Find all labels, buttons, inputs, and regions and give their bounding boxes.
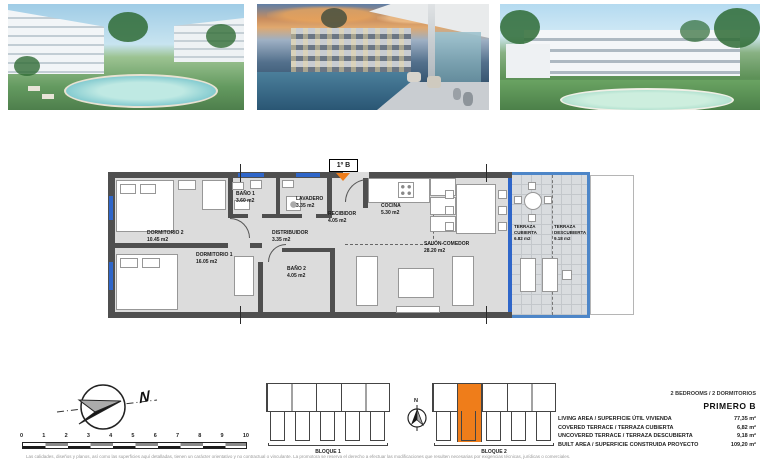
side-table <box>562 270 572 280</box>
chair <box>445 222 454 231</box>
swimming-pool <box>64 74 218 108</box>
terrace-rail <box>512 315 590 318</box>
wall-segment <box>108 243 228 248</box>
pillow <box>142 258 160 268</box>
dimension-tick <box>240 164 241 182</box>
terrace-chair <box>427 76 441 88</box>
desk <box>178 180 196 190</box>
terrace-chair <box>528 214 536 222</box>
area-table-row: BUILT AREA / SUPERFICIE CONSTRUIDA PROYE… <box>558 441 756 450</box>
window-glazing <box>109 262 113 290</box>
laundry-sink <box>282 180 294 188</box>
keyplan-bloque-2: BLOQUE 2 <box>432 383 556 457</box>
room-label-dormitorio-1: DORMITORIO 116.05 m2 <box>196 252 233 266</box>
wall-segment <box>282 248 330 252</box>
render-photo-building-lawn <box>500 4 760 110</box>
bedrooms-line: 2 BEDROOMS / 2 DORMITORIOS <box>558 391 756 397</box>
chair <box>498 222 507 231</box>
unit-name: PRIMERO B <box>558 401 756 411</box>
sun-lounger <box>520 258 536 292</box>
scale-bar <box>22 442 247 449</box>
block-outline <box>266 383 390 412</box>
room-label-dormitorio-2: DORMITORIO 210.45 m2 <box>147 230 184 244</box>
wall-segment <box>250 243 262 248</box>
block-bracket <box>268 443 388 446</box>
north-label: N <box>139 388 150 408</box>
scale-bar-numbers: 01 23 45 67 89 10 <box>20 433 249 439</box>
unit-terrace-outline <box>270 411 285 441</box>
wall-segment <box>262 214 302 218</box>
pillow <box>120 184 136 194</box>
unit-terrace-outline <box>486 411 501 441</box>
room-label-bano-2: BAÑO 24.05 m2 <box>287 266 306 280</box>
room-label-terraza-descubierta: TERRAZA DESCUBIERTA9.18 m2 <box>554 224 591 242</box>
dimension-tick <box>486 164 487 182</box>
sun-lounger <box>42 94 54 99</box>
room-label-cocina: COCINA5.30 m2 <box>381 203 401 217</box>
terrace-chair <box>407 72 421 82</box>
terrace-rail <box>587 172 590 318</box>
washbasin <box>232 182 244 190</box>
chair <box>498 206 507 215</box>
block-outline <box>432 383 556 412</box>
room-label-lavadero: LAVADERO3.35 m2 <box>296 196 323 210</box>
dining-table <box>456 184 496 234</box>
terrace-chair <box>528 182 536 190</box>
room-label-recibidor: RECIBIDOR4.05 m2 <box>328 211 356 225</box>
palm-tree <box>206 24 236 48</box>
chair <box>445 206 454 215</box>
wardrobe <box>202 180 226 210</box>
terrace-table <box>524 192 542 210</box>
palm-tree <box>108 12 148 42</box>
sofa <box>452 256 474 306</box>
entrance-arrow-icon <box>336 173 350 181</box>
sun-lounger <box>28 86 40 91</box>
wall-segment <box>108 312 512 318</box>
unit-terrace-outline <box>436 411 451 441</box>
wall-segment <box>276 178 280 214</box>
terrace-chair <box>544 196 552 204</box>
window-glazing <box>238 173 264 177</box>
unit-terrace-outline <box>370 411 385 441</box>
toilet <box>250 180 262 189</box>
terrace-glazing <box>508 178 512 312</box>
sofa <box>356 256 378 306</box>
coffee-table <box>398 268 434 298</box>
render-photo-pool-day <box>8 4 244 110</box>
window-glazing <box>296 173 320 177</box>
wardrobe <box>234 256 254 296</box>
unit-label-badge: 1º B <box>329 159 358 172</box>
chair <box>445 190 454 199</box>
room-label-terraza-cubierta: TERRAZA CUBIERTA6.82 m2 <box>514 224 551 242</box>
site-north-label: N <box>403 398 429 404</box>
area-table-row: UNCOVERED TERRACE / TERRAZA DESCUBIERTA9… <box>558 432 756 441</box>
sun-lounger <box>542 258 558 292</box>
wall-segment <box>327 178 332 214</box>
dimension-tick <box>240 306 241 324</box>
area-table-row: COVERED TERRACE / TERRAZA CUBIERTA6,82 m… <box>558 424 756 433</box>
site-compass-icon <box>406 405 428 431</box>
floor-plan: DORMITORIO 210.45 m2 DORMITORIO 116.05 m… <box>100 158 636 324</box>
unit-terrace-outline <box>320 411 335 441</box>
pillow <box>120 258 138 268</box>
area-summary: 2 BEDROOMS / 2 DORMITORIOS PRIMERO B LIV… <box>558 391 756 449</box>
palm-tree <box>500 10 540 44</box>
keyplan-bloque-1: BLOQUE 1 <box>266 383 390 457</box>
window-glazing <box>109 196 113 220</box>
legal-disclaimer: Las calidades, diseños y planos, así com… <box>26 454 752 459</box>
tv-bench <box>396 306 440 313</box>
decor-vase <box>453 88 461 100</box>
room-label-salon-comedor: SALÓN-COMEDOR28.20 m2 <box>424 241 469 255</box>
palm-tree <box>321 8 347 28</box>
chair <box>498 190 507 199</box>
terrace-rail <box>512 172 590 175</box>
render-photo-dusk-terrace <box>257 4 489 110</box>
cooktop <box>398 182 414 198</box>
room-label-distribuidor: DISTRIBUIDOR3.35 m2 <box>272 230 308 244</box>
wall-segment <box>330 248 335 318</box>
villa-facade <box>506 44 550 78</box>
terrace-divider-dashed <box>552 175 553 315</box>
pillow <box>140 184 156 194</box>
block-bracket <box>434 443 554 446</box>
unit-terrace-outline <box>461 411 476 441</box>
room-label-bano-1: BAÑO 13.60 m2 <box>236 191 255 205</box>
unit-terrace-outline <box>345 411 360 441</box>
kitchen-boundary-dashed <box>345 244 433 245</box>
unit-terrace-outline <box>536 411 551 441</box>
unit-terrace-outline <box>295 411 310 441</box>
lit-windows <box>291 28 411 74</box>
dimension-tick <box>486 306 487 324</box>
terrace-outline-extension <box>590 175 634 315</box>
decor-vase <box>463 92 473 106</box>
palm-tree <box>680 20 710 42</box>
wall-segment <box>258 262 263 318</box>
terrace-chair <box>514 196 522 204</box>
palm-tree <box>14 56 40 76</box>
palm-tree <box>714 8 760 48</box>
area-table-row: LIVING AREA / SUPERFICIE ÚTIL VIVIENDA77… <box>558 415 756 424</box>
swimming-pool <box>560 88 734 110</box>
unit-terrace-outline <box>511 411 526 441</box>
brochure-page: DORMITORIO 210.45 m2 DORMITORIO 116.05 m… <box>0 0 770 460</box>
